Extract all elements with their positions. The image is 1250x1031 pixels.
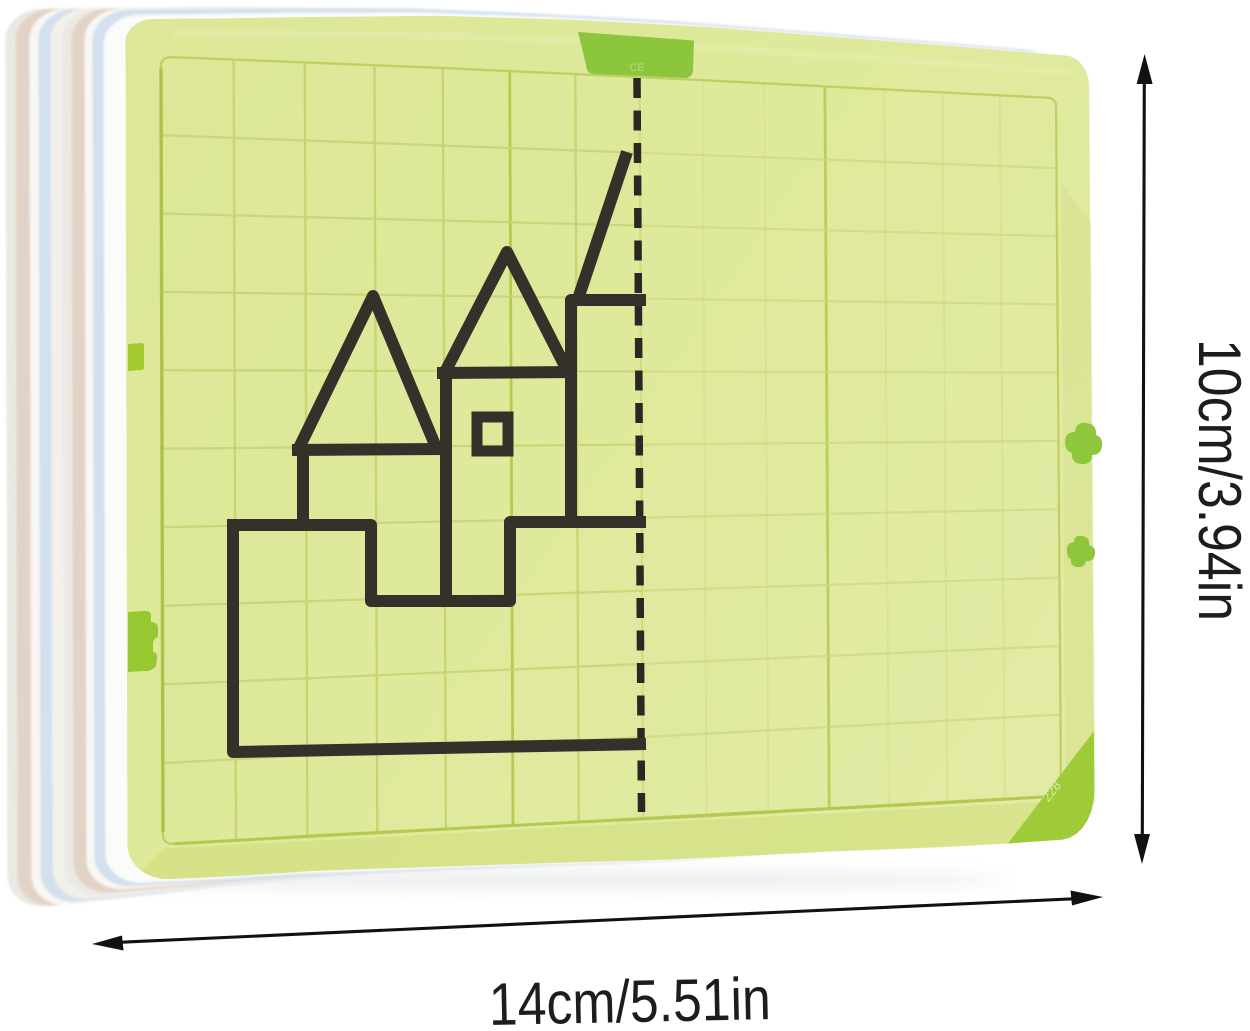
svg-text:CE: CE xyxy=(629,62,644,74)
svg-text:10cm/3.94in: 10cm/3.94in xyxy=(1186,339,1250,621)
svg-text:14cm/5.51in: 14cm/5.51in xyxy=(488,965,771,1031)
